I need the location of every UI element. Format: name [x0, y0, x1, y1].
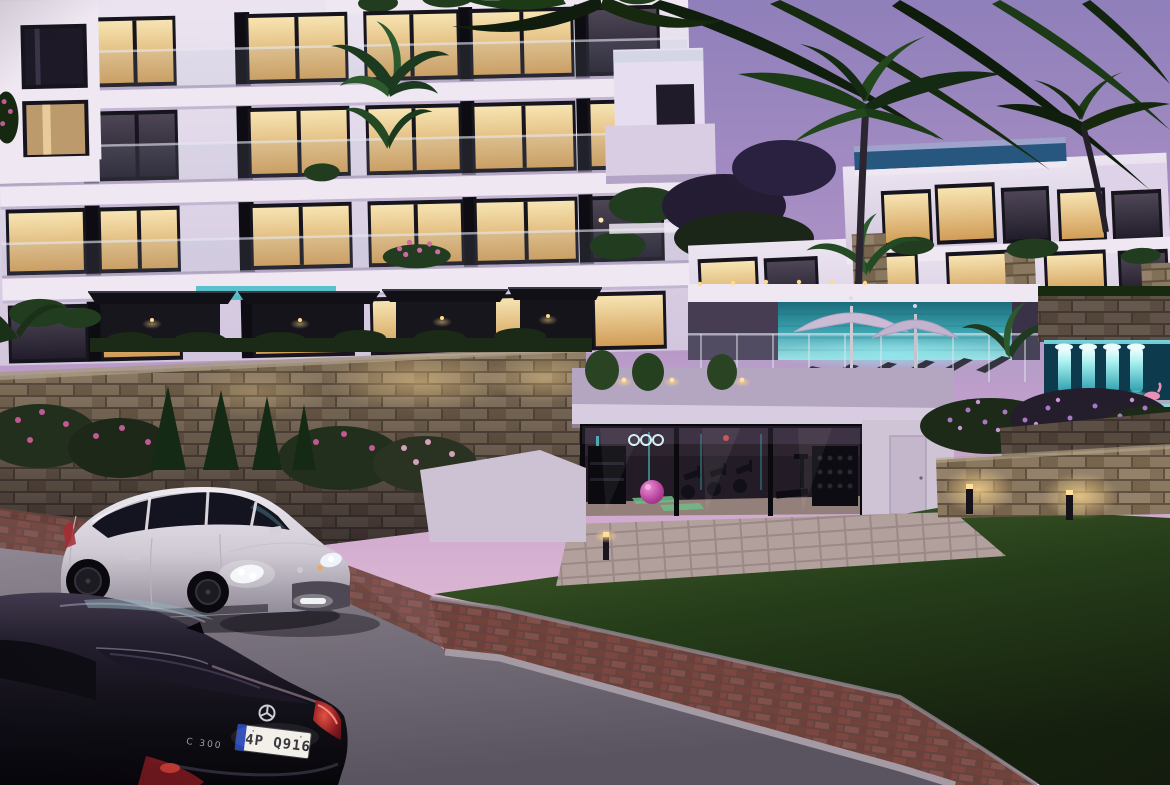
- vignette-overlay: [0, 0, 1170, 785]
- architectural-render-photo: C 300 4P Q916: [0, 0, 1170, 785]
